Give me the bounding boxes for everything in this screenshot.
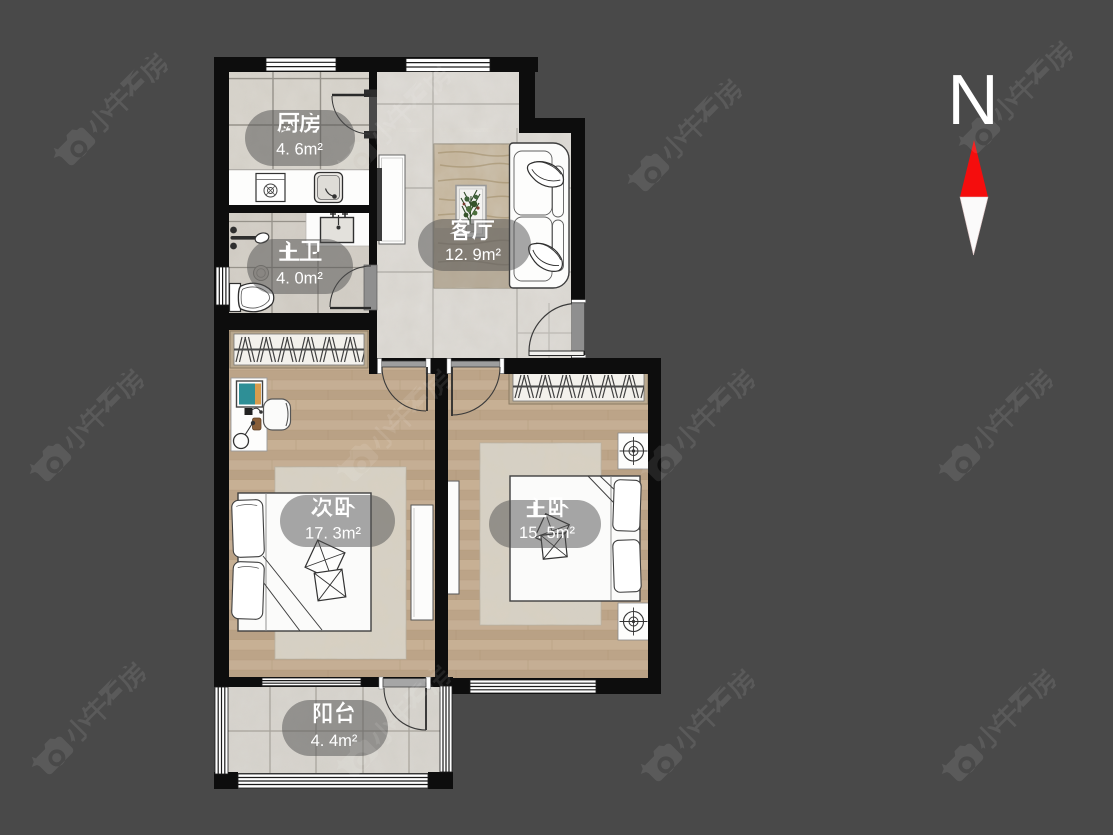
svg-text:12. 9m²: 12. 9m²	[445, 246, 501, 264]
svg-text:17. 3m²: 17. 3m²	[305, 525, 361, 543]
svg-text:4. 6m²: 4. 6m²	[276, 141, 323, 159]
svg-text:4. 0m²: 4. 0m²	[276, 270, 323, 288]
svg-text:15. 5m²: 15. 5m²	[519, 524, 575, 542]
